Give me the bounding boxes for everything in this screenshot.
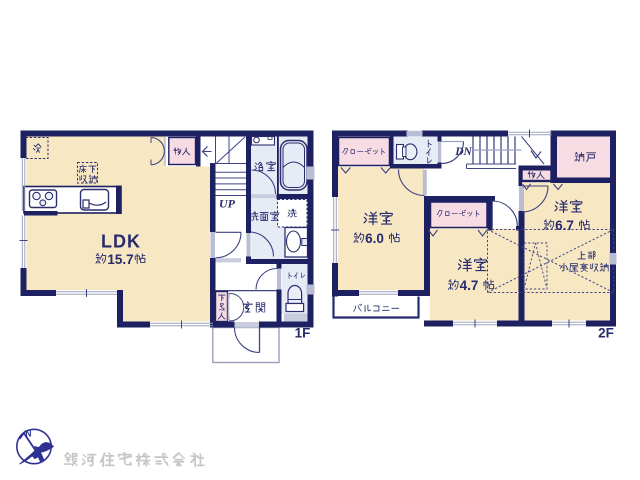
- svg-text:2F: 2F: [598, 326, 614, 341]
- svg-text:6.7: 6.7: [555, 218, 574, 233]
- svg-text:DN: DN: [454, 146, 472, 158]
- svg-text:UP: UP: [219, 197, 236, 211]
- svg-text:6.0: 6.0: [365, 231, 384, 246]
- svg-text:1F: 1F: [295, 326, 311, 341]
- svg-text:LDK: LDK: [101, 232, 141, 252]
- svg-text:4.7: 4.7: [460, 278, 479, 293]
- svg-text:15.7: 15.7: [107, 252, 133, 267]
- svg-text:N: N: [25, 429, 31, 439]
